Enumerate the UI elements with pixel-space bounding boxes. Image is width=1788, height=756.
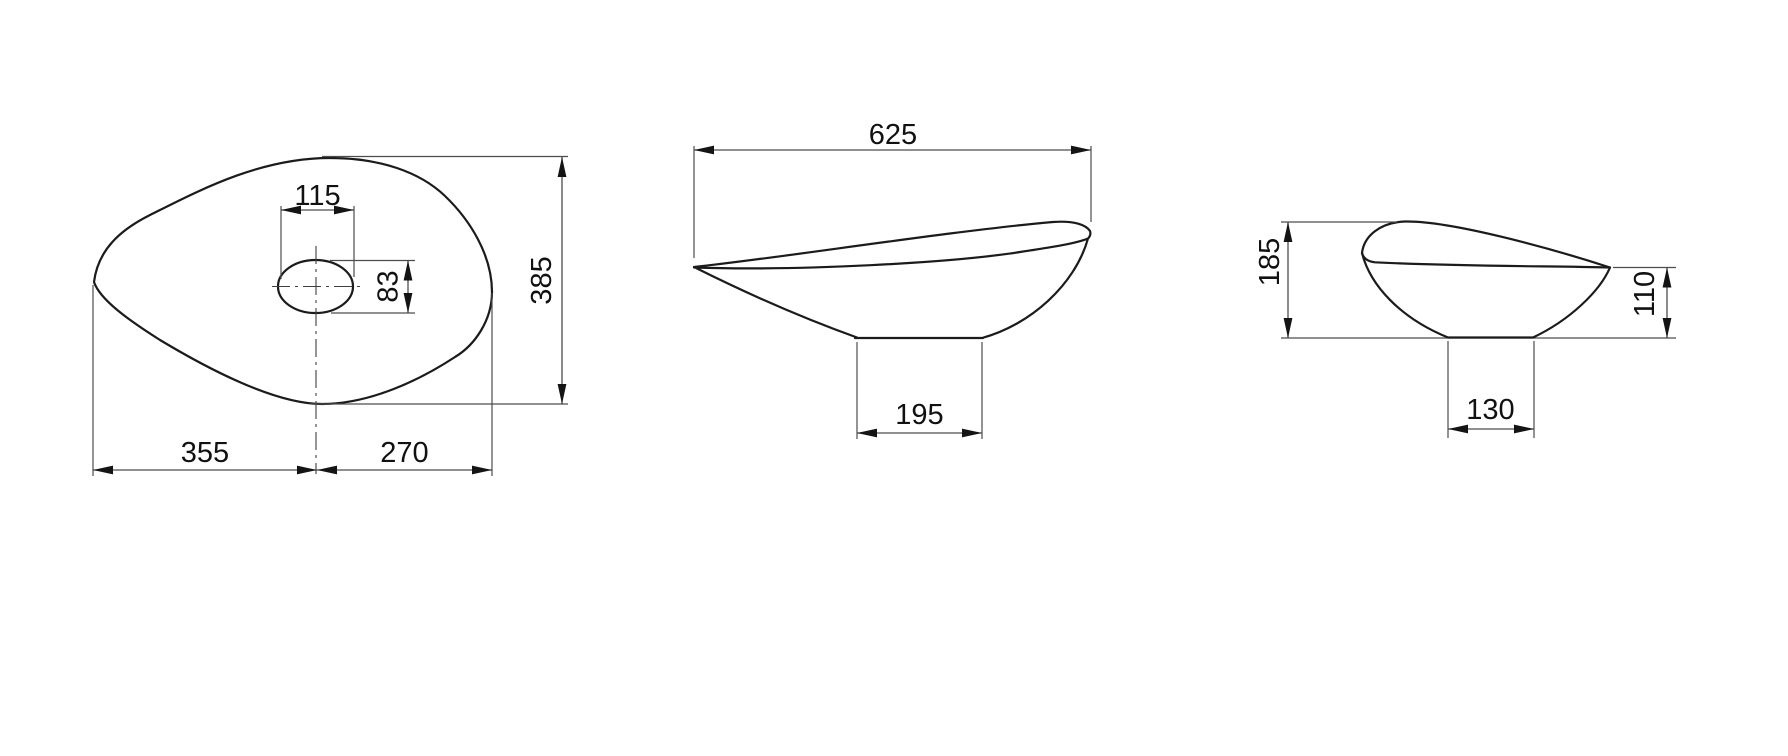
dim-label-overall-depth: 385	[526, 256, 558, 304]
arrowhead-left	[857, 429, 877, 438]
dim-label-rim-tip-height: 110	[1629, 271, 1661, 317]
dim-label-left-to-drain: 355	[181, 437, 229, 469]
arrowhead-right	[472, 466, 492, 475]
front-view: 625 195	[694, 119, 1091, 439]
arrowhead-right	[962, 429, 982, 438]
dim-label-hole-height: 83	[373, 270, 405, 302]
dim-overall-height: 185	[1254, 222, 1397, 338]
side-view: 185 110 130	[1254, 221, 1676, 438]
dim-overall-width: 625	[694, 119, 1091, 258]
dim-label-base-depth: 130	[1466, 394, 1514, 426]
arrowhead-left	[694, 146, 714, 155]
arrowhead-up	[558, 157, 567, 177]
dim-label-overall-width: 625	[869, 119, 917, 151]
arrowhead-down	[1663, 318, 1672, 338]
dim-label-drain-to-right: 270	[380, 437, 428, 469]
basin-side-outline	[1362, 221, 1610, 337]
dim-rim-tip-height: 110	[1613, 268, 1676, 339]
dim-base-depth: 130	[1448, 341, 1534, 438]
dim-hole-width: 115	[281, 180, 354, 279]
arrowhead-right	[297, 466, 317, 475]
basin-rim-outline	[94, 158, 492, 404]
arrowhead-left	[1448, 425, 1468, 434]
arrowhead-right	[1071, 146, 1091, 155]
arrowhead-down	[404, 293, 413, 313]
drawing-sheet: 115 83 385 355	[0, 0, 1788, 756]
arrowhead-left	[93, 466, 113, 475]
arrowhead-right	[1514, 425, 1534, 434]
arrowhead-up	[1663, 268, 1672, 288]
arrowhead-left	[317, 466, 337, 475]
basin-front-outline	[694, 222, 1090, 338]
dim-base-width: 195	[857, 342, 982, 439]
technical-drawing: 115 83 385 355	[0, 0, 1788, 756]
dim-label-base-width: 195	[895, 399, 943, 431]
dim-label-overall-height: 185	[1254, 238, 1286, 286]
arrowhead-down	[558, 384, 567, 404]
top-view: 115 83 385 355	[93, 157, 568, 477]
arrowhead-up	[404, 261, 413, 281]
dim-label-hole-width: 115	[294, 180, 340, 212]
arrowhead-down	[1284, 318, 1293, 338]
dim-left-to-drain: 355	[93, 285, 317, 476]
